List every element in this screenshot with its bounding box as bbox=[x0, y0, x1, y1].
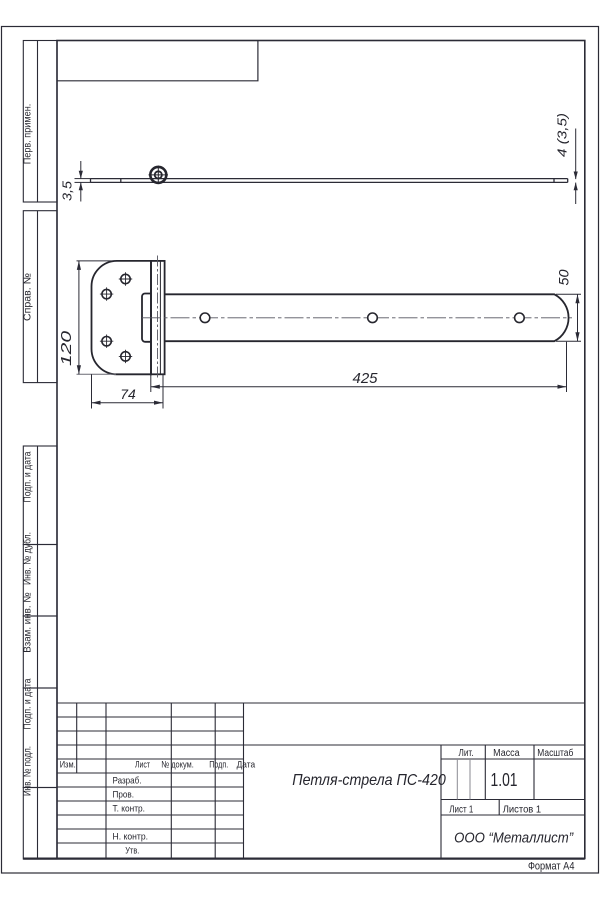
svg-text:Листов 1: Листов 1 bbox=[503, 804, 542, 815]
svg-text:Разраб.: Разраб. bbox=[113, 776, 142, 787]
svg-text:Подп. и дата: Подп. и дата bbox=[23, 451, 34, 502]
svg-text:Дата: Дата bbox=[237, 760, 256, 771]
svg-text:50: 50 bbox=[557, 269, 572, 286]
svg-text:3,5: 3,5 bbox=[60, 180, 75, 201]
svg-text:425: 425 bbox=[353, 370, 379, 387]
svg-text:Петля-стрела ПС-420: Петля-стрела ПС-420 bbox=[292, 772, 446, 789]
svg-text:Взам. инв. №: Взам. инв. № bbox=[23, 592, 34, 653]
svg-text:4 (3,5): 4 (3,5) bbox=[555, 113, 570, 157]
svg-text:120: 120 bbox=[59, 331, 75, 366]
svg-text:Инв. № подл.: Инв. № подл. bbox=[23, 746, 34, 796]
svg-text:Н. контр.: Н. контр. bbox=[113, 832, 149, 843]
svg-text:Перв. примен.: Перв. примен. bbox=[23, 104, 34, 165]
svg-text:Изм.: Изм. bbox=[60, 760, 76, 771]
svg-text:Инв. № дубл.: Инв. № дубл. bbox=[22, 532, 34, 585]
svg-text:Лит.: Лит. bbox=[459, 748, 474, 759]
svg-text:Масштаб: Масштаб bbox=[537, 747, 573, 759]
svg-text:Утв.: Утв. bbox=[125, 846, 139, 857]
svg-text:Подп. и дата: Подп. и дата bbox=[23, 678, 34, 729]
svg-text:Лист: Лист bbox=[135, 760, 150, 771]
svg-text:Т. контр.: Т. контр. bbox=[113, 804, 146, 815]
svg-text:Масса: Масса bbox=[493, 748, 520, 759]
svg-text:74: 74 bbox=[120, 386, 136, 402]
svg-text:Пров.: Пров. bbox=[113, 790, 135, 801]
svg-text:№ докум.: № докум. bbox=[161, 760, 194, 771]
svg-text:1.01: 1.01 bbox=[491, 770, 518, 790]
svg-text:Подп.: Подп. bbox=[209, 760, 228, 771]
svg-text:Справ. №: Справ. № bbox=[23, 273, 34, 321]
svg-text:Формат А4: Формат А4 bbox=[528, 861, 575, 873]
svg-text:Лист 1: Лист 1 bbox=[449, 804, 473, 815]
svg-text:ООО “Металлист”: ООО “Металлист” bbox=[454, 830, 574, 847]
